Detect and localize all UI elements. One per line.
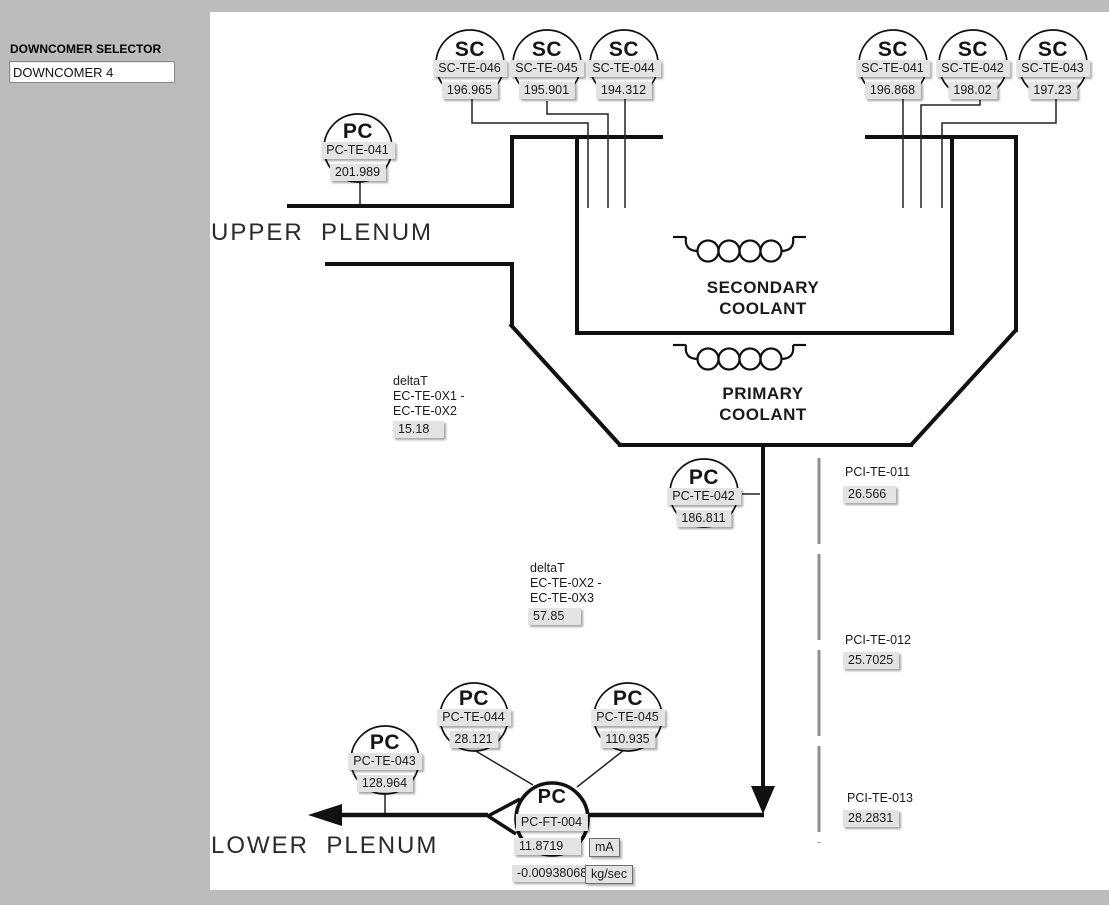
instrument-type: PC bbox=[689, 466, 719, 490]
instrument-type: SC bbox=[958, 38, 988, 62]
pci-sensor-value: 28.2831 bbox=[843, 810, 899, 827]
primary-coolant-label: PRIMARY COOLANT bbox=[663, 383, 863, 425]
instrument-tag: SC-TE-046 bbox=[433, 60, 507, 77]
downcomer-selector-label: DOWNCOMER SELECTOR bbox=[10, 42, 161, 56]
instrument-value: 186.811 bbox=[676, 510, 731, 527]
diagram-canvas: UPPER PLENUM LOWER PLENUM SECONDARY COOL… bbox=[210, 12, 1109, 890]
instrument-type: SC bbox=[878, 38, 908, 62]
instrument-tag: PC-TE-043 bbox=[348, 753, 422, 770]
pci-sensor-value: 26.566 bbox=[843, 486, 896, 503]
instrument-type: PC bbox=[343, 120, 373, 144]
instrument-value: 197.23 bbox=[1028, 82, 1077, 99]
instrument-tag: SC-TE-044 bbox=[587, 60, 661, 77]
delta-t-block-2: deltaT EC-TE-0X2 - EC-TE-0X3 57.85 bbox=[530, 561, 602, 606]
instrument-tag: SC-TE-043 bbox=[1016, 60, 1090, 77]
upper-plenum-label: UPPER PLENUM bbox=[211, 219, 433, 247]
secondary-coolant-coil bbox=[673, 237, 806, 262]
down-flow-arrow bbox=[751, 786, 775, 814]
primary-coolant-coil bbox=[673, 345, 806, 370]
instrument-type: SC bbox=[1038, 38, 1068, 62]
instrument-value: 196.868 bbox=[865, 82, 921, 99]
scada-screen: { "selector": { "label": "DOWNCOMER SELE… bbox=[0, 0, 1109, 905]
instrument-value: 196.965 bbox=[442, 82, 498, 99]
instrument-type: SC bbox=[532, 38, 562, 62]
instrument-value: 195.901 bbox=[519, 82, 575, 99]
instrument-value: 194.312 bbox=[596, 82, 652, 99]
instrument-value: 201.989 bbox=[330, 164, 386, 181]
instrument-circles bbox=[324, 30, 1087, 855]
instrument-value: 28.121 bbox=[449, 731, 498, 748]
instrument-type: SC bbox=[609, 38, 639, 62]
flow-current-value: 11.8719 bbox=[514, 838, 581, 855]
instrument-type: PC bbox=[370, 731, 400, 755]
delta-t-block-1: deltaT EC-TE-0X1 - EC-TE-0X2 15.18 bbox=[393, 374, 465, 419]
pci-sensor-tag: PCI-TE-013 bbox=[847, 791, 913, 806]
pci-sensor-tag: PCI-TE-011 bbox=[845, 465, 910, 480]
instrument-type: PC bbox=[459, 687, 489, 711]
delta-t-value: 57.85 bbox=[528, 608, 581, 625]
delta-t-value: 15.18 bbox=[393, 421, 444, 438]
instrument-type: PC bbox=[538, 786, 567, 809]
lower-plenum-label: LOWER PLENUM bbox=[211, 832, 438, 860]
downcomer-selector-input[interactable] bbox=[9, 61, 175, 83]
instrument-tag: SC-TE-045 bbox=[510, 60, 584, 77]
instrument-tag: PC-TE-042 bbox=[667, 488, 741, 505]
instrument-type: SC bbox=[455, 38, 485, 62]
instrument-value: 198.02 bbox=[948, 82, 997, 99]
instrument-tag: PC-TE-044 bbox=[437, 709, 511, 726]
pci-sensor-tag: PCI-TE-012 bbox=[845, 633, 911, 648]
pci-sensor-value: 25.7025 bbox=[843, 652, 899, 669]
flow-current-unit: mA bbox=[589, 838, 620, 857]
flow-rate-value: -0.00938068 bbox=[512, 865, 585, 882]
left-flow-arrow bbox=[308, 804, 342, 826]
instrument-tag: PC-TE-045 bbox=[591, 709, 665, 726]
secondary-coolant-label: SECONDARY COOLANT bbox=[663, 277, 863, 319]
instrument-tag: PC-TE-041 bbox=[321, 142, 395, 159]
flow-rate-unit: kg/sec bbox=[585, 865, 633, 884]
instrument-tag: SC-TE-041 bbox=[856, 60, 930, 77]
instrument-tag: SC-TE-042 bbox=[936, 60, 1010, 77]
instrument-value: 128.964 bbox=[357, 775, 413, 792]
instrument-value: 110.935 bbox=[600, 731, 655, 748]
instrument-type: PC bbox=[613, 687, 643, 711]
instrument-tag: PC-FT-004 bbox=[516, 814, 588, 831]
